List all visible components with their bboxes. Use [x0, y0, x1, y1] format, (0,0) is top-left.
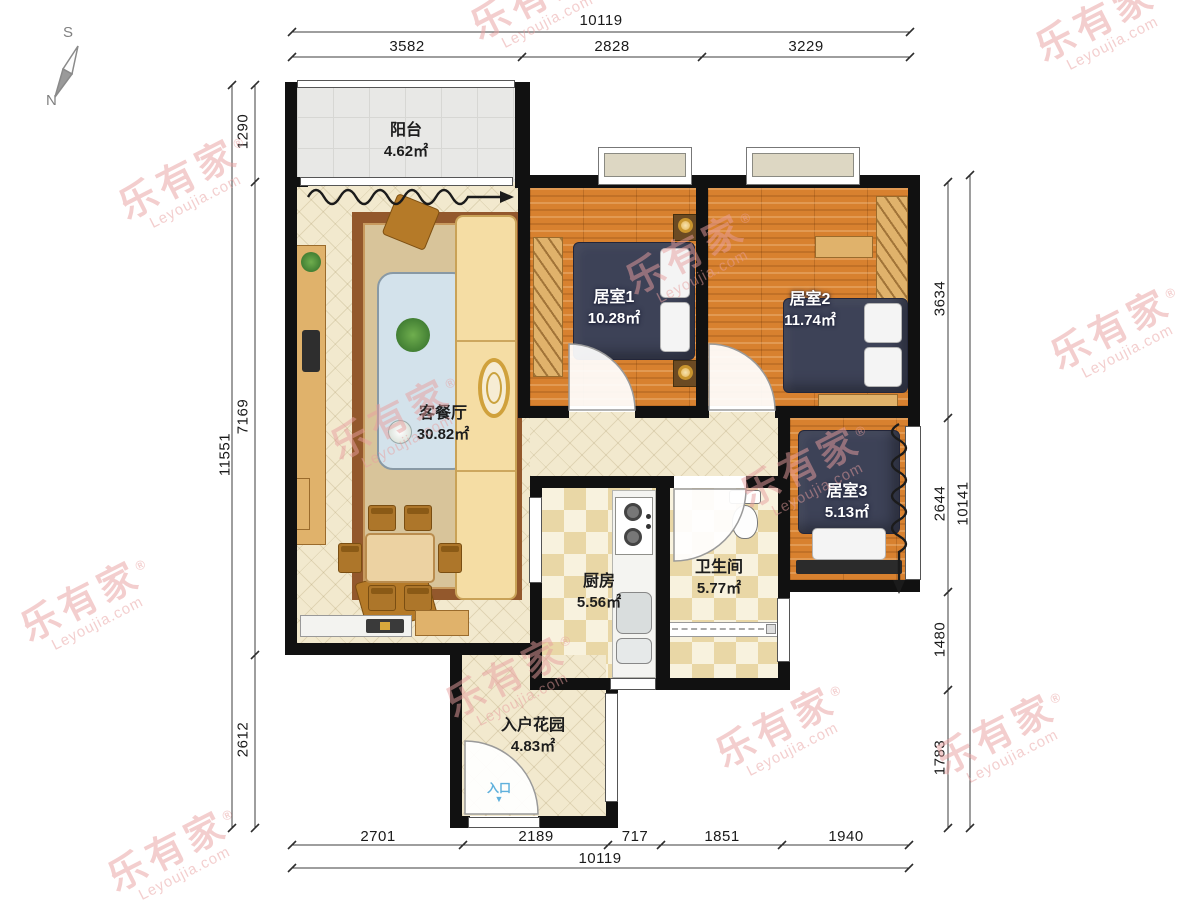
wall-bed3-south [778, 580, 920, 592]
sliding-door-track [300, 177, 513, 186]
lamp-icon [678, 365, 693, 380]
dim-bottom-seg4: 1851 [687, 828, 757, 845]
bay-window-bedroom2 [746, 147, 860, 185]
wall-kitchen-bath-north [530, 476, 674, 488]
dining-table-icon [365, 533, 435, 583]
room-label-balcony: 阳台4.62㎡ [384, 121, 428, 161]
toilet-tank [729, 490, 761, 504]
room-label-bedroom3: 居室35.13㎡ [825, 482, 869, 522]
wall-entry-south [450, 816, 470, 828]
dim-right-seg4: 1783 [932, 723, 949, 793]
window-kitchen [529, 497, 542, 583]
doormat-emblem [380, 622, 390, 630]
pillow-icon [864, 347, 902, 387]
stove-knob [646, 524, 651, 529]
chair-icon [404, 505, 432, 531]
wall-kitchen-west [530, 476, 542, 498]
teacup-icon [388, 420, 412, 444]
dim-right-seg2: 2644 [932, 469, 949, 539]
dim-bottom-seg3: 717 [600, 828, 670, 845]
compass-south-label: S [63, 24, 73, 41]
sofa-cushion-line [457, 470, 515, 472]
plant-icon [396, 318, 430, 352]
entry-arrow-icon: ▼ [487, 795, 511, 805]
hallway-floor [530, 412, 778, 476]
plant-icon [301, 252, 321, 272]
wall-living-bed1 [518, 175, 530, 418]
wall-living-south [285, 643, 542, 655]
window-bathroom [777, 598, 790, 662]
window-bedroom3 [905, 426, 921, 580]
floor-lamp-inner [486, 372, 502, 404]
dim-bottom-total: 10119 [560, 850, 640, 867]
room-label-entry-garden: 入户花园4.83㎡ [501, 716, 565, 756]
wall-balcony-right [515, 82, 530, 188]
dim-left-seg3: 2612 [235, 705, 252, 775]
room-label-bedroom1: 居室110.28㎡ [588, 288, 641, 328]
dim-top-seg2: 2828 [577, 38, 647, 55]
wall-kitchen-west [530, 582, 542, 690]
chair-icon [404, 585, 432, 611]
dim-top-total: 10119 [561, 12, 641, 29]
toilet-icon [732, 505, 758, 539]
chair-icon [368, 585, 396, 611]
dim-top-seg3: 3229 [771, 38, 841, 55]
desk-icon [815, 236, 873, 258]
wall-kitchen-south [542, 678, 610, 690]
watermark: 乐有家®Leyoujia.com [1045, 280, 1193, 391]
cabinet-icon [296, 478, 310, 530]
wardrobe-icon [876, 196, 908, 310]
bed-frame-icon [796, 560, 902, 574]
wall-kitchen-bath [656, 476, 670, 690]
pillow-icon [660, 302, 690, 352]
shower-screen-line [672, 628, 764, 630]
shower-handle [766, 624, 776, 634]
wall-bath-south [656, 678, 790, 690]
bay-window-bedroom1 [598, 147, 692, 185]
entry-marker: 入口 ▼ [487, 782, 511, 805]
dim-bottom-seg1: 2701 [343, 828, 413, 845]
window-entry-garden [605, 693, 618, 802]
floor-plan-canvas: 阳台4.62㎡ 客餐厅30.82㎡ 居室110.28㎡ 居室211.74㎡ 居室… [0, 0, 1200, 900]
stove-knob [646, 514, 651, 519]
wall-bedrooms-south [635, 406, 709, 418]
dim-right-seg1: 3634 [932, 264, 949, 334]
watermark: 乐有家®Leyoujia.com [710, 678, 858, 789]
room-label-bathroom: 卫生间5.77㎡ [695, 558, 743, 598]
chair-icon [368, 505, 396, 531]
wall-entry-east [606, 800, 618, 828]
watermark: 乐有家®Leyoujia.com [102, 802, 250, 900]
balcony-railing [297, 80, 515, 88]
pillow-icon [660, 248, 690, 298]
dim-left-total: 11551 [217, 420, 234, 490]
room-label-living: 客餐厅30.82㎡ [417, 404, 470, 444]
room-label-bedroom2: 居室211.74㎡ [784, 290, 836, 330]
entry-door-threshold [468, 817, 540, 828]
chair-icon [338, 543, 362, 573]
wall-bedrooms-south [530, 406, 569, 418]
kitchen-door-threshold [610, 678, 656, 690]
chair-icon [438, 543, 462, 573]
lamp-icon [678, 218, 693, 233]
pillow-icon [812, 528, 886, 560]
wall-bed1-bed2 [696, 175, 708, 412]
tv-icon [302, 330, 320, 372]
burner-icon [624, 503, 642, 521]
dim-bottom-seg2: 2189 [501, 828, 571, 845]
wall-right-outer [908, 175, 920, 428]
compass-needle [55, 46, 78, 97]
dim-right-total: 10141 [955, 469, 972, 539]
watermark: 乐有家®Leyoujia.com [930, 685, 1078, 796]
wall-left-outer [285, 82, 297, 655]
wardrobe-icon [533, 237, 563, 377]
wall-entry-west [450, 643, 462, 828]
cabinet-icon [415, 610, 469, 636]
sink-icon [616, 592, 652, 634]
dim-bottom-seg5: 1940 [811, 828, 881, 845]
wall-bedrooms-south [775, 406, 920, 418]
watermark: 乐有家®Leyoujia.com [1030, 0, 1178, 83]
watermark: 乐有家®Leyoujia.com [15, 552, 163, 663]
sofa-cushion-line [457, 340, 515, 342]
room-label-kitchen: 厨房5.56㎡ [577, 572, 621, 612]
dim-left-seg2: 7169 [235, 382, 252, 452]
dim-top-seg1: 3582 [372, 38, 442, 55]
dim-right-seg3: 1480 [932, 605, 949, 675]
wall-bath-east [778, 418, 790, 600]
pillow-icon [864, 303, 902, 343]
sink-drainer-icon [616, 638, 652, 664]
compass-north-label: N [46, 92, 57, 109]
dim-left-seg1: 1290 [235, 97, 252, 167]
burner-icon [624, 528, 642, 546]
